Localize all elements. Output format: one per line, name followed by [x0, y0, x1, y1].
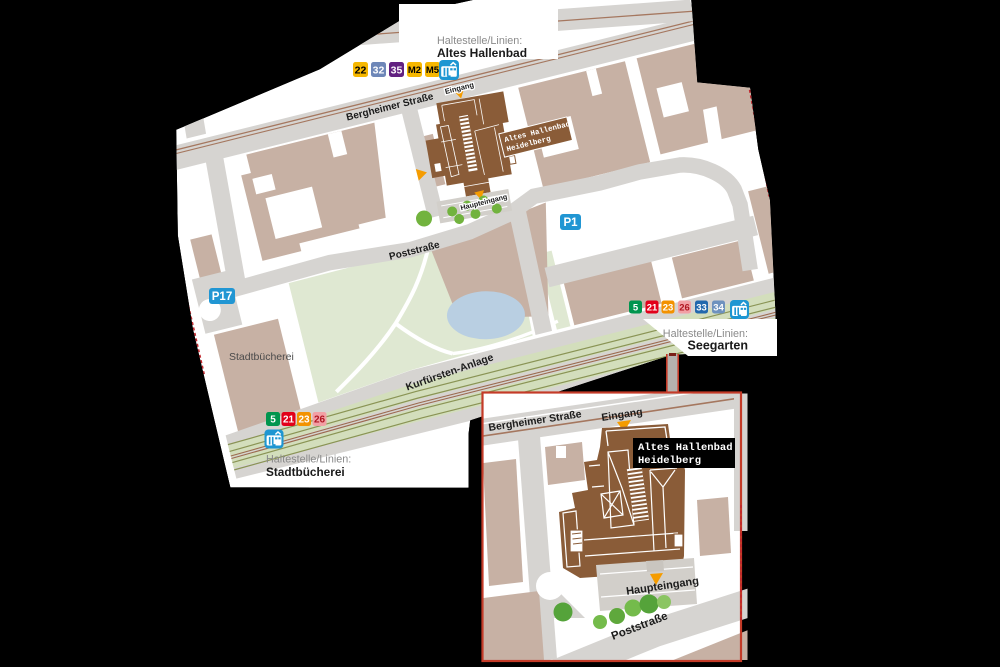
svg-text:Stadtbücherei: Stadtbücherei: [266, 465, 345, 479]
svg-text:Stadtbücherei: Stadtbücherei: [229, 351, 294, 363]
svg-text:Heidelberg: Heidelberg: [638, 455, 701, 467]
svg-text:21: 21: [647, 302, 658, 313]
svg-text:33: 33: [696, 302, 707, 313]
svg-text:P17: P17: [212, 291, 232, 303]
svg-text:5: 5: [270, 415, 276, 426]
svg-text:Altes Hallenbad: Altes Hallenbad: [638, 442, 733, 454]
svg-text:35: 35: [391, 64, 403, 76]
svg-text:M5: M5: [426, 65, 440, 76]
svg-text:Altes Hallenbad: Altes Hallenbad: [437, 46, 527, 60]
svg-text:M2: M2: [408, 65, 421, 76]
svg-text:26: 26: [679, 302, 690, 313]
svg-text:5: 5: [633, 302, 639, 313]
svg-text:Seegarten: Seegarten: [688, 339, 748, 353]
svg-text:P1: P1: [563, 217, 578, 229]
svg-text:26: 26: [314, 415, 326, 426]
svg-text:21: 21: [283, 415, 295, 426]
svg-text:23: 23: [298, 415, 310, 426]
svg-text:Haltestelle/Linien:: Haltestelle/Linien:: [266, 454, 351, 466]
svg-text:22: 22: [355, 64, 367, 76]
svg-text:32: 32: [373, 64, 385, 76]
svg-text:34: 34: [713, 302, 724, 313]
svg-text:23: 23: [663, 302, 674, 313]
